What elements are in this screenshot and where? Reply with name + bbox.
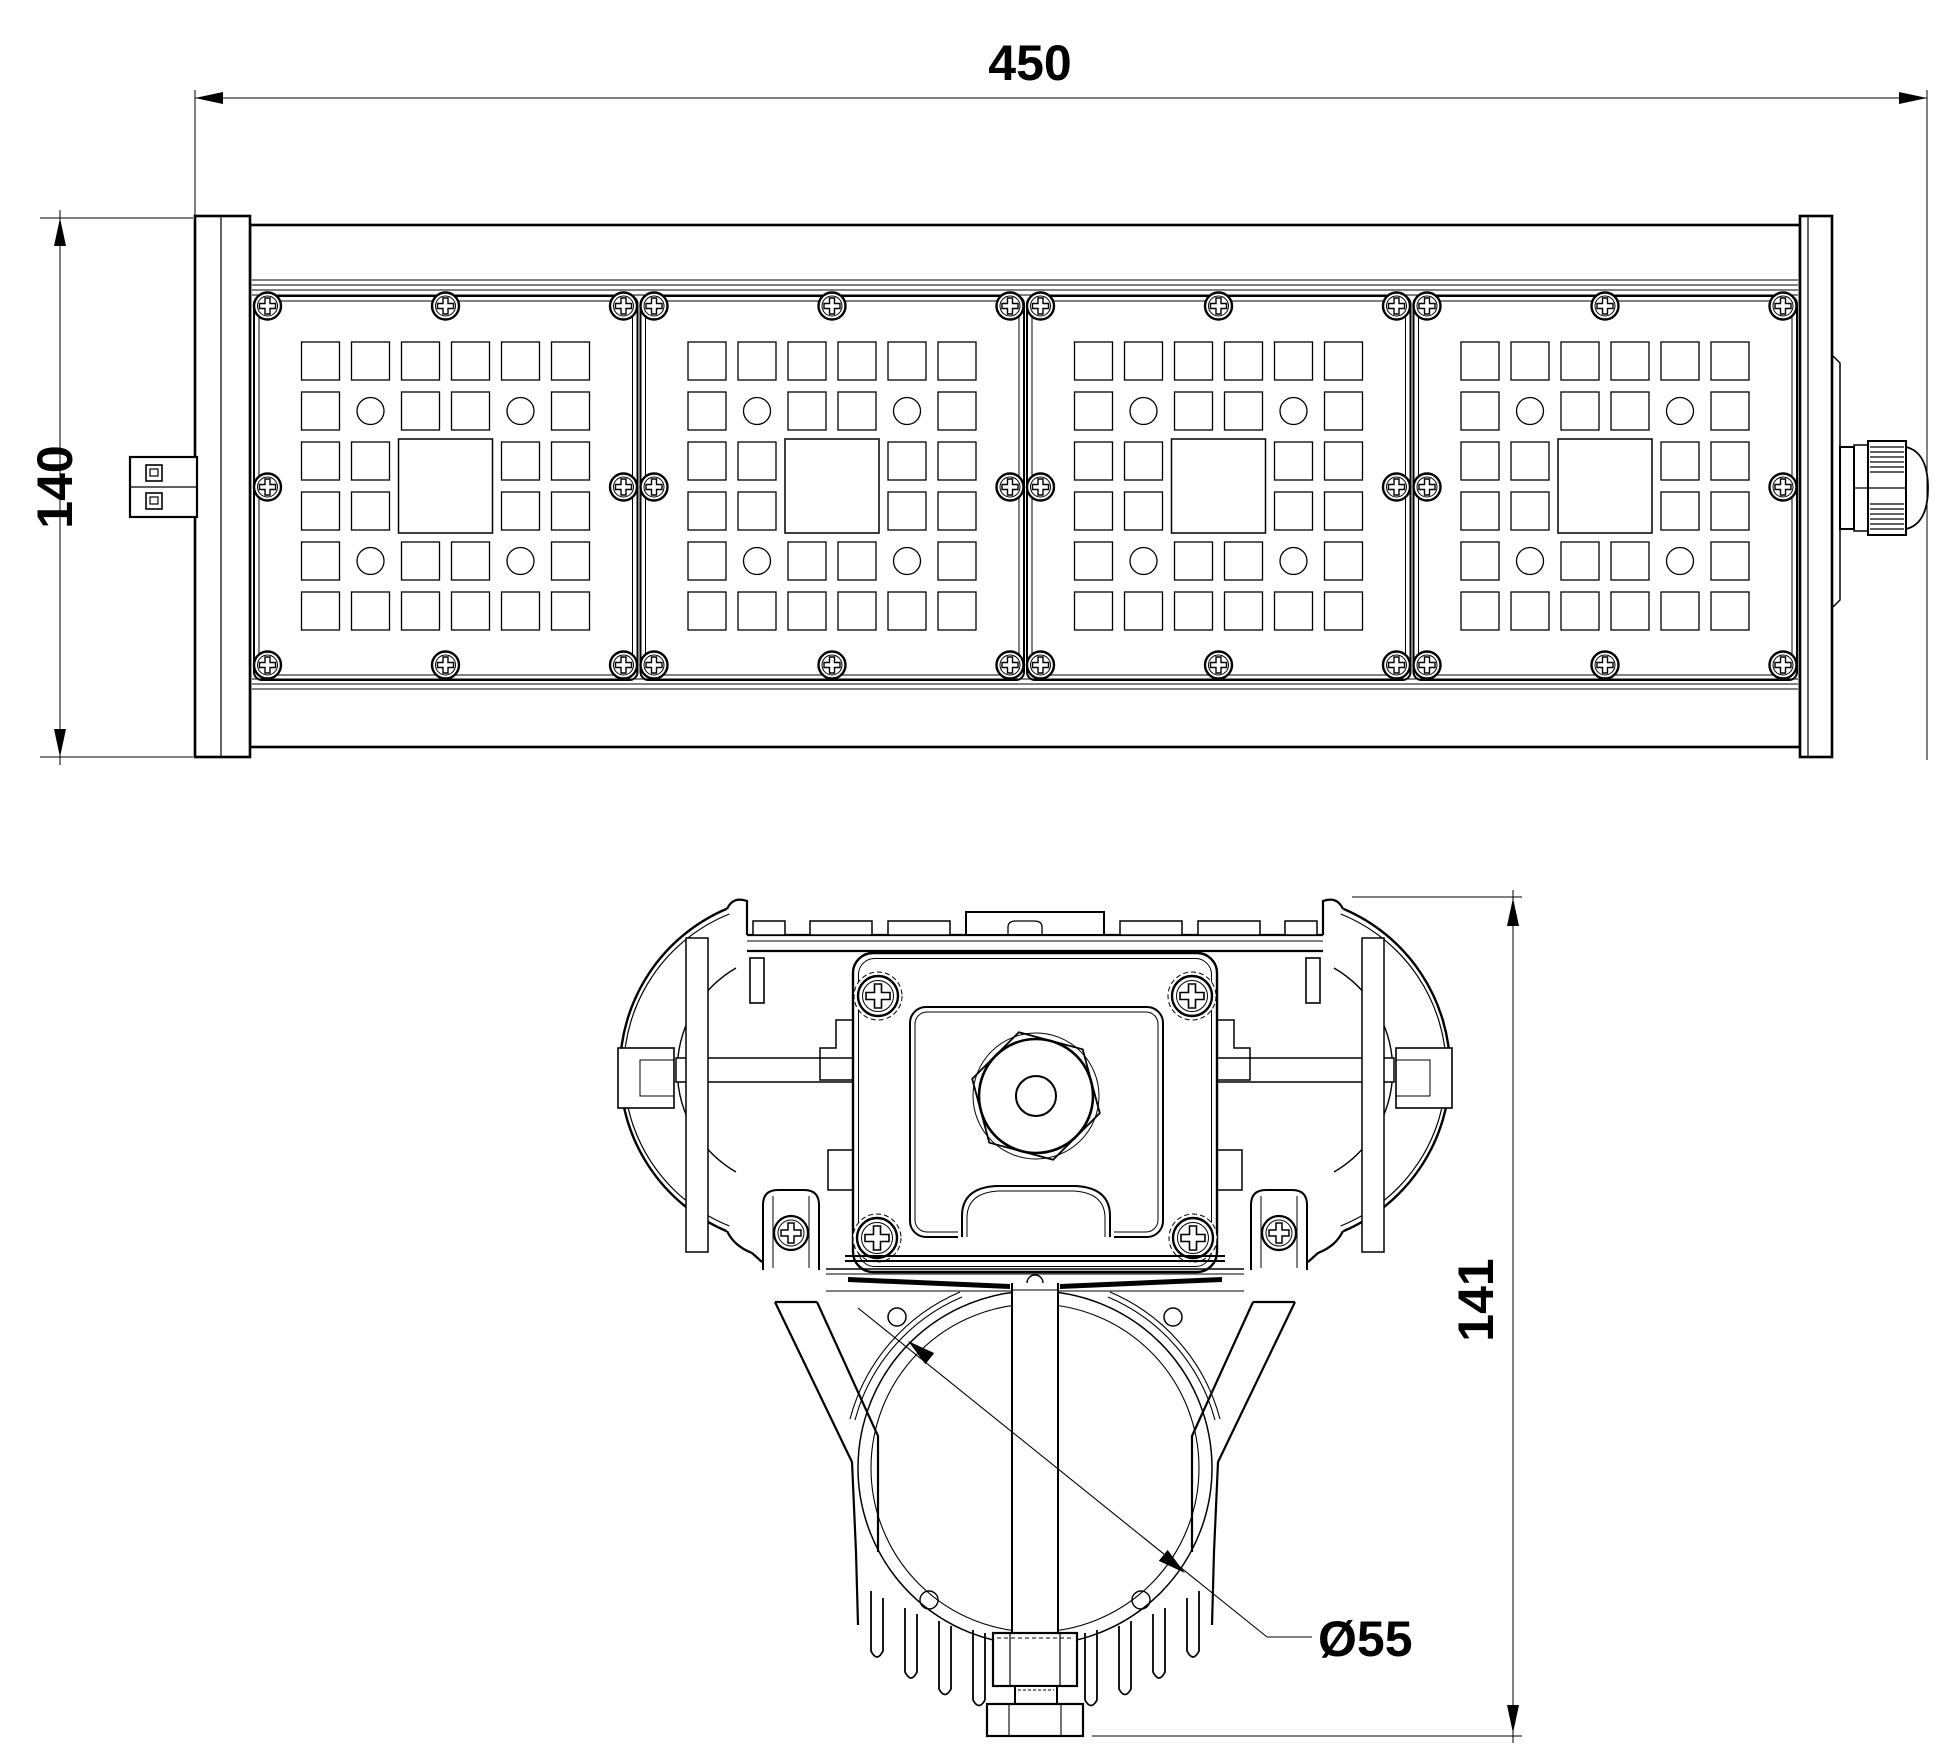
pipe-strap [1012,1275,1058,1633]
hanger-tab [966,912,1104,935]
clamp-nut [987,1704,1083,1736]
module-3 [1027,293,1411,681]
inner-plate [910,1007,1163,1239]
top-rail [747,912,1323,951]
arrowhead-down-icon [54,729,66,757]
top-view [130,216,1928,757]
arrowhead-left-icon [195,92,223,104]
bracket-screw-top-right [1168,972,1216,1020]
dim-length-label: 450 [988,35,1071,91]
end-cap-left [195,216,250,757]
arrowhead-up-icon [1507,898,1519,926]
slot-right [1306,958,1320,1003]
arrowhead-up-icon [54,218,66,246]
arrowhead-down-icon [1507,1705,1519,1733]
wing-channel-vertical [686,938,708,1252]
end-cap-right [1800,216,1832,757]
drawing-canvas: 450 140 [0,0,1936,1745]
keyhole-right [1164,1308,1182,1326]
dim-section-height-label: 141 [1448,1258,1504,1341]
module-1 [254,293,638,681]
arrowhead-diag-up-icon [908,1341,934,1364]
dim-height-label: 140 [27,445,83,528]
arrowhead-right-icon [1899,92,1927,104]
wing-notch [618,1048,674,1108]
bracket-screw-bottom-right [1169,1214,1217,1262]
pipe-clamp [987,1633,1083,1736]
slot-left [750,958,764,1003]
cable-gland [1832,355,1928,608]
bracket-screw-top-left [854,972,902,1020]
terminal-connector [130,457,197,517]
module-4 [1414,293,1798,681]
module-2 [641,293,1025,681]
keyhole-left [888,1308,906,1326]
dim-pipe-diameter-label: Ø55 [1318,1611,1413,1667]
technical-drawing: 450 140 [0,0,1936,1745]
bracket-screw-bottom-left [853,1214,901,1262]
arch-cutout [958,1184,1114,1239]
dimension-length-450: 450 [195,35,1927,760]
gland-dome [1906,447,1928,529]
